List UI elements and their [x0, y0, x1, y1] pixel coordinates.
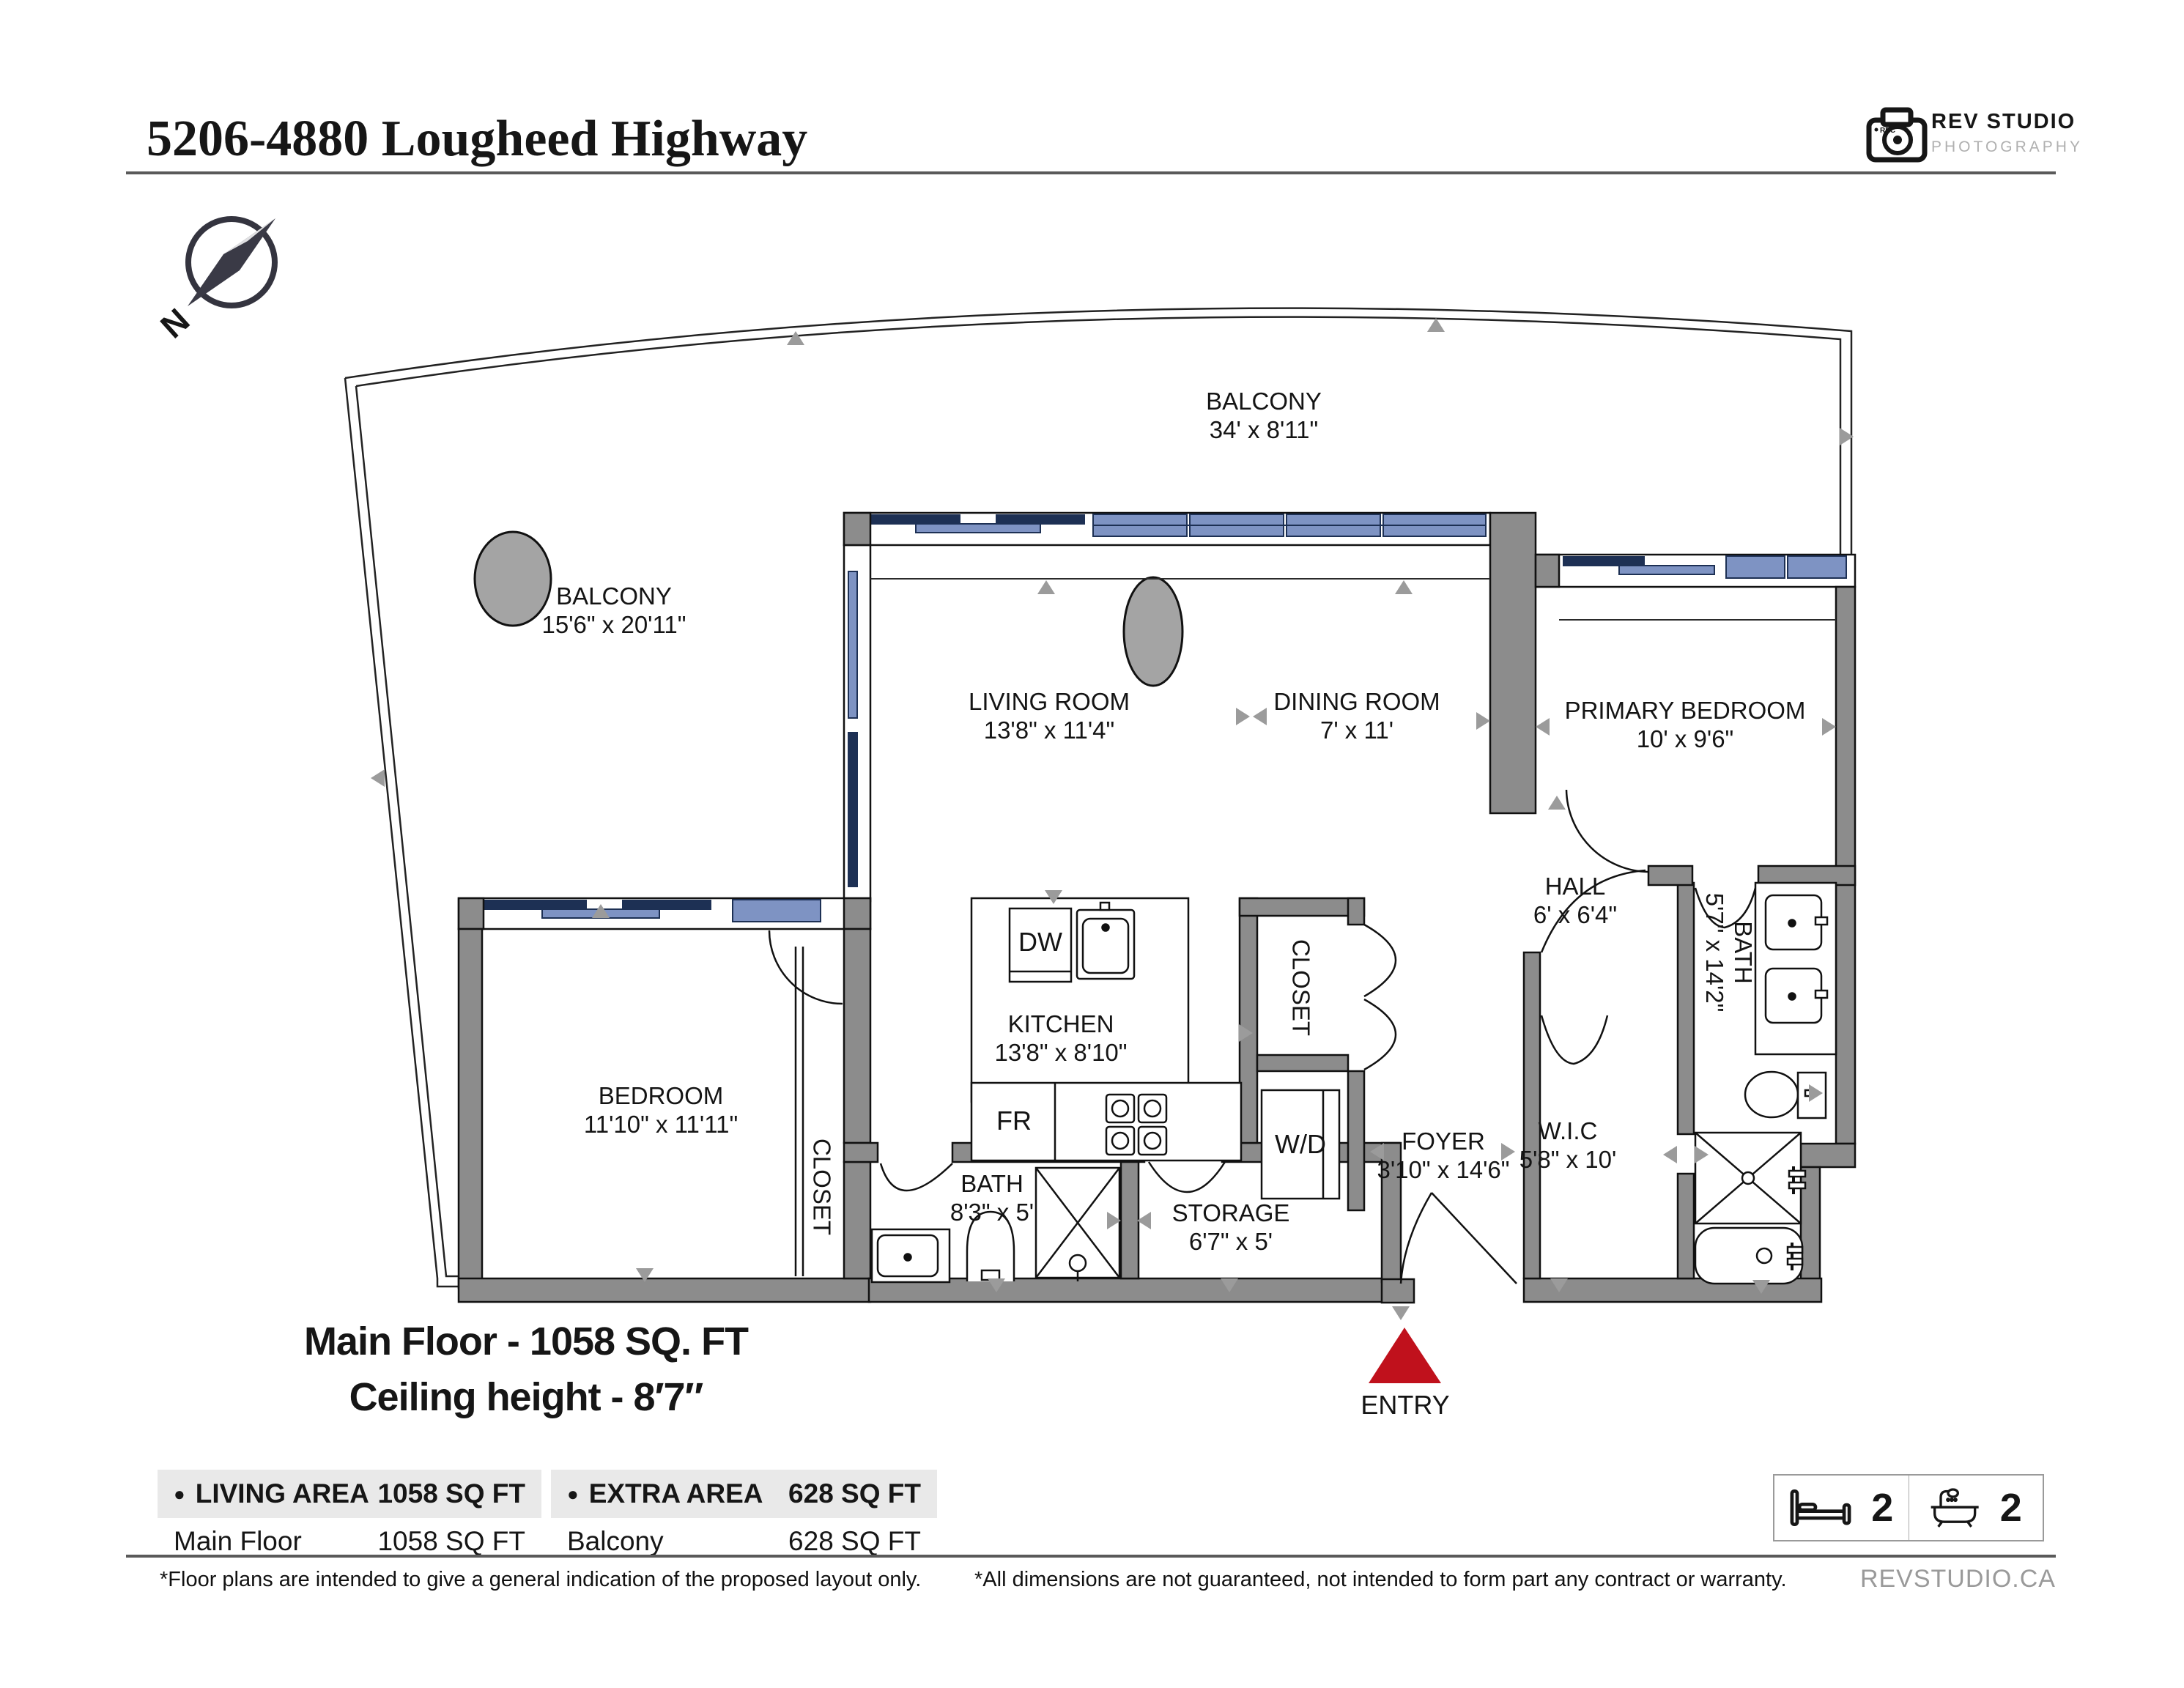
room-label-foyer: FOYER 3'10" x 14'6": [1377, 1127, 1510, 1184]
room-label-fridge: FR: [996, 1106, 1032, 1135]
room-label-washer-dryer: W/D: [1275, 1130, 1326, 1158]
room-label-balcony-top: BALCONY 34' x 8'11": [1206, 387, 1322, 444]
living-area-bullet: ●: [174, 1483, 185, 1506]
floor-summary: Main Floor - 1058 SQ. FT Ceiling height …: [299, 1314, 753, 1425]
floor-summary-line1: Main Floor - 1058 SQ. FT: [299, 1314, 753, 1369]
room-label-living-room: LIVING ROOM 13'8" x 11'4": [969, 687, 1130, 744]
bed-icon: [1789, 1488, 1852, 1528]
bath-stat: 2: [1909, 1476, 2043, 1540]
room-label-bedroom: BEDROOM 11'10" x 11'11": [584, 1081, 738, 1139]
extra-area-row-label: Balcony: [567, 1526, 664, 1557]
room-label-balcony-left: BALCONY 15'6" x 20'11": [542, 582, 686, 639]
footer-divider: [126, 1555, 2056, 1558]
website-label: REVSTUDIO.CA: [1795, 1565, 2056, 1593]
extra-area-title: EXTRA AREA: [589, 1478, 763, 1509]
footnote-right: *All dimensions are not guaranteed, not …: [974, 1568, 1787, 1592]
entry-arrow-icon: [1369, 1328, 1441, 1383]
bed-count: 2: [1871, 1485, 1893, 1530]
bath-icon: [1930, 1487, 1981, 1528]
sliding-doors: [796, 947, 803, 1276]
room-label-dining-room: DINING ROOM 7' x 11': [1273, 687, 1440, 744]
room-label-dishwasher: DW: [1018, 928, 1062, 956]
extra-area-total: 628 SQ FT: [788, 1478, 921, 1509]
bed-bath-stats-box: 2 2: [1773, 1474, 2044, 1541]
room-label-closet-bedroom: CLOSET: [808, 1139, 837, 1235]
living-area-row-value: 1058 SQ FT: [377, 1526, 525, 1557]
bath-count: 2: [2000, 1485, 2022, 1530]
bed-stat: 2: [1774, 1476, 1909, 1540]
floorplan-page: 5206-4880 Lougheed Highway REC REV STUDI…: [0, 0, 2184, 1688]
floor-summary-line2: Ceiling height - 8′7″: [299, 1369, 753, 1425]
living-area-title: LIVING AREA: [196, 1478, 369, 1509]
room-label-primary-bedroom: PRIMARY BEDROOM 10' x 9'6": [1565, 696, 1806, 753]
extra-area-header: ● EXTRA AREA 628 SQ FT: [551, 1470, 937, 1518]
room-label-wic: W.I.C 5'8" x 10': [1519, 1117, 1617, 1174]
room-label-hall: HALL 6' x 6'4": [1533, 872, 1617, 929]
extra-area-row-value: 628 SQ FT: [788, 1526, 921, 1557]
floorplan-drawing: [0, 0, 2184, 1688]
room-label-bath-primary: BATH 5'7" x 14'2": [1700, 893, 1758, 1013]
living-area-header: ● LIVING AREA 1058 SQ FT: [158, 1470, 541, 1518]
footnote-left: *Floor plans are intended to give a gene…: [160, 1568, 921, 1592]
room-label-bath-main: BATH 8'3" x 5': [950, 1169, 1034, 1226]
room-label-kitchen: KITCHEN 13'8" x 8'10": [995, 1010, 1128, 1067]
living-area-row-label: Main Floor: [174, 1526, 302, 1557]
room-label-storage: STORAGE 6'7" x 5': [1172, 1199, 1290, 1256]
entry-label: ENTRY: [1361, 1391, 1449, 1419]
room-label-closet-middle: CLOSET: [1287, 939, 1316, 1036]
living-area-total: 1058 SQ FT: [377, 1478, 525, 1509]
extra-area-bullet: ●: [567, 1483, 579, 1506]
